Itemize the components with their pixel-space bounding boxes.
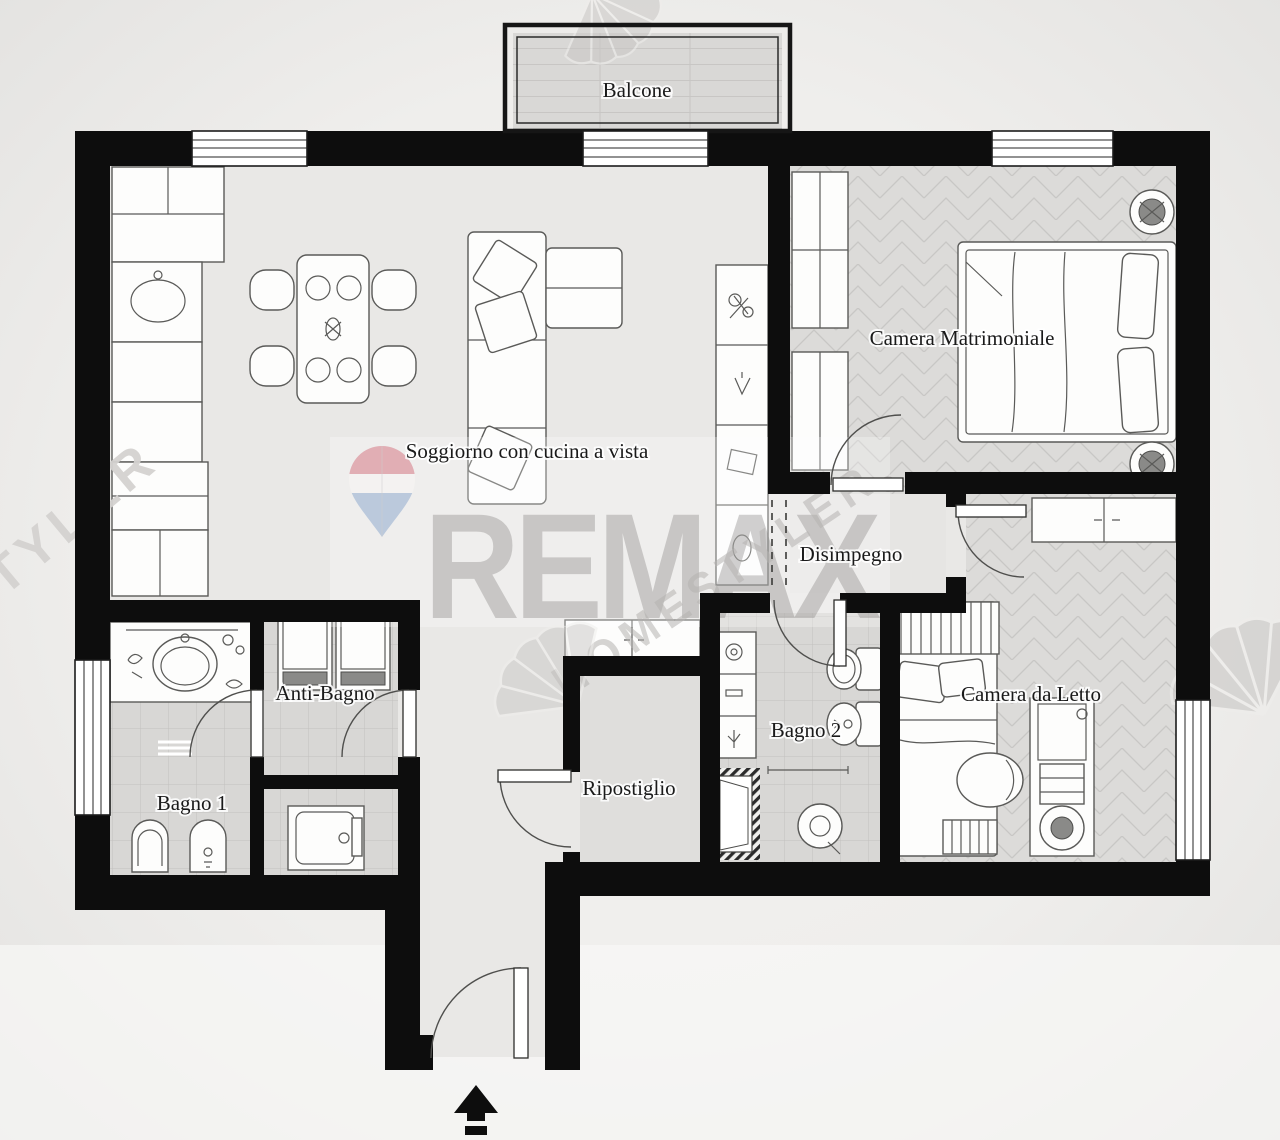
- floor-ripostiglio: [580, 676, 700, 862]
- room-label-bagno-1: Bagno 1: [157, 791, 228, 815]
- toilet: [132, 820, 168, 872]
- single-bed: [891, 602, 999, 856]
- shower: [288, 806, 364, 870]
- dining-chair: [250, 346, 294, 386]
- room-label-camera-matrimoniale: Camera Matrimoniale: [870, 326, 1055, 350]
- room-label-disimpegno: Disimpegno: [800, 542, 903, 566]
- bidet: [190, 820, 226, 872]
- window: [75, 660, 110, 815]
- dining-chair: [372, 346, 416, 386]
- plant: [1130, 190, 1174, 234]
- window: [1176, 700, 1210, 860]
- sink: [153, 637, 217, 691]
- window: [992, 131, 1113, 166]
- desk: [1030, 698, 1094, 856]
- floorplan-page: REMAX ® HOMESTYLER HOMESTYLER: [0, 0, 1280, 1140]
- page-background-bottom: [0, 945, 1280, 1140]
- dining-chair: [250, 270, 294, 310]
- room-label-ripostiglio: Ripostiglio: [582, 776, 675, 800]
- balcony-door-window: [583, 131, 708, 166]
- floorplan-canvas: REMAX ® HOMESTYLER HOMESTYLER: [0, 0, 1280, 1140]
- pillow: [1117, 253, 1159, 339]
- room-label-soggiorno: Soggiorno con cucina a vista: [406, 439, 649, 463]
- room-label-balcone: Balcone: [603, 78, 672, 102]
- room-label-anti-bagno: Anti-Bagno: [275, 681, 374, 705]
- room-label-bagno-2: Bagno 2: [771, 718, 842, 742]
- window: [192, 131, 307, 166]
- room-label-camera-da-letto: Camera da Letto: [961, 682, 1101, 706]
- pillow: [1117, 347, 1159, 433]
- dining-chair: [372, 270, 416, 310]
